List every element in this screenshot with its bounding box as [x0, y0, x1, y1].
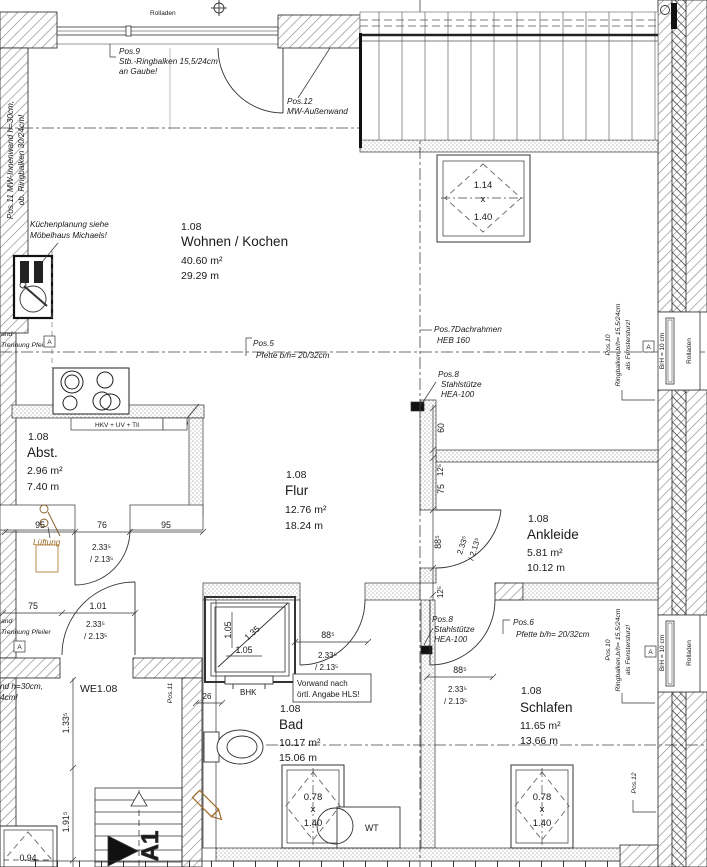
top-window-band [57, 26, 278, 130]
rolladen-top-label: Rolladen [150, 10, 176, 17]
room-wohnen-per: 29.29 m [181, 270, 219, 282]
room-ankleide-name: Ankleide [527, 527, 579, 542]
wall-cut-line2: 4cm! [0, 693, 18, 702]
pos9-line1: Pos.9 [119, 47, 140, 56]
pos8-1-line1: Pos.8 [438, 370, 459, 379]
cooktop [53, 368, 129, 414]
room-bad-name: Bad [279, 717, 303, 732]
rolladen-right-top: Rolladen [686, 338, 693, 364]
room-flur-name: Flur [285, 483, 309, 498]
vorwand-box: Vorwand nach örtl. Angabe HLS! [293, 674, 371, 702]
pos12-top-line2: MW-Außenwand [287, 107, 348, 116]
pos10-bottom-line3: als Fenstersturz! [625, 625, 632, 675]
marker-a-2: A [17, 644, 22, 651]
room-flur-area: 12.76 m² [285, 504, 327, 516]
room-bad-area: 10.17 m² [279, 737, 321, 749]
marker-a-1: A [47, 339, 52, 346]
pos10-top-line3: als Fenstersturz! [625, 320, 632, 370]
dim-schlafen-door-w: 88⁵ [453, 665, 467, 675]
pos9-line3: an Gaube! [119, 67, 158, 76]
lueftung-label: Lüftung [33, 538, 61, 547]
kueche-note-line1: Küchenplanung siehe [30, 220, 109, 229]
dim-schlafen-door-b: / 2.13⁵ [444, 697, 467, 706]
roof-window-large-height: 1.40 [474, 212, 493, 223]
wall-note2-line2: Trennung Pfeiler [1, 629, 51, 636]
pos5-line2: Pfette b/h= 20/32cm [256, 351, 330, 360]
pos8-2-line3: HEA-100 [434, 635, 468, 644]
room-abst-name: Abst. [27, 445, 58, 460]
marker-a-4: A [648, 649, 653, 656]
brh-note-top: BrH = 10 cm [659, 333, 666, 369]
room-ankleide-nr: 1.08 [528, 513, 549, 525]
roof-window-large: 1.14 x 1.40 [437, 155, 530, 242]
pos11-left-line1: Pos.11 MW-Innenwand h=30cm, [6, 101, 15, 219]
pos10-bottom-line1: Pos.10 [605, 639, 612, 660]
room-bad-nr: 1.08 [280, 703, 301, 715]
room-wohnen-name: Wohnen / Kochen [181, 234, 288, 249]
room-schlafen-per: 13.66 m [520, 735, 558, 747]
stair-label: A1 [137, 831, 164, 862]
roof-window-bad-sep: x [311, 804, 316, 815]
dim-bad-door-a: 2.33⁵ [318, 651, 337, 660]
pos11-left-line2: ob. Ringbalken 30/24cm! [17, 114, 26, 205]
roof-window-bad: 0.78 x 1.40 [282, 765, 344, 848]
survey-point-icon [211, 0, 227, 16]
light-walls [0, 140, 658, 861]
dim-door1-b: / 2.13⁵ [90, 555, 113, 564]
room-wohnen-nr: 1.08 [181, 221, 202, 233]
dim-ankleide-door-b: / 2.13⁵ [467, 537, 483, 562]
roof-window-schlafen-width: 0.78 [533, 792, 552, 803]
room-schlafen-area: 11.65 m² [520, 720, 561, 732]
roof-window-large-width: 1.14 [474, 180, 493, 191]
pos12-top-line1: Pos.12 [287, 97, 313, 106]
room-flur-per: 18.24 m [285, 520, 323, 532]
room-wohnen-area: 40.60 m² [181, 255, 223, 267]
room-ankleide-area: 5.81 m² [527, 547, 563, 559]
wall-cut-line1: nd h=30cm, [0, 682, 43, 691]
roof-window-corner-width: 0.94 [19, 853, 36, 863]
right-window-bottom: BrH = 10 cm Rolladen [658, 615, 700, 692]
dim-bad-door-b: / 2.13⁵ [315, 663, 338, 672]
dim-shower-diag: 1.35 [242, 624, 262, 643]
pos5-line1: Pos.5 [253, 339, 274, 348]
dim-76: 76 [97, 520, 107, 530]
room-schlafen-name: Schlafen [520, 700, 573, 715]
door-arc-terrace [218, 48, 283, 113]
pos7-line2: HEB 160 [437, 336, 470, 345]
dim-75-v: 75 [436, 484, 446, 494]
marker-a-3: A [646, 344, 651, 351]
dim-125-b: 12⁵ [436, 586, 445, 598]
dim-101: 1.01 [89, 601, 106, 611]
wall-note2-line1: and [1, 618, 13, 625]
dim-bad-door-w: 88⁵ [321, 630, 335, 640]
brh-note-bottom: BrH = 10 cm [659, 635, 666, 671]
pos8-1-line3: HEA-100 [441, 390, 475, 399]
dim-95-left: 95 [35, 520, 45, 530]
dim-schlafen-door-a: 2.33⁵ [448, 685, 467, 694]
toilet [204, 730, 263, 764]
door-arc-stair-lobby [62, 582, 135, 655]
dimension-texts: 95 76 95 2.33⁵ / 2.13⁵ 75 1.01 2.33⁵ / 2… [28, 423, 482, 832]
dim-door2-b: / 2.13⁵ [84, 632, 107, 641]
dim-885-v: 88⁵ [433, 535, 443, 549]
pos12-bottom-label: Pos.12 [631, 772, 638, 793]
bhk-label: BHK [240, 688, 257, 697]
vorwand-line1: Vorwand nach [297, 679, 348, 688]
room-abst-area: 2.96 m² [27, 465, 63, 477]
pos8-2-line2: Stahlstütze [434, 625, 475, 634]
room-schlafen-nr: 1.08 [521, 685, 542, 697]
dim-75: 75 [28, 601, 38, 611]
roof-window-schlafen-height: 1.40 [533, 818, 552, 829]
pos10-top-line2: Ringbalken,b/h= 15,5/24cm [615, 303, 622, 386]
kitchen-sink-unit [14, 250, 52, 368]
dim-95-right: 95 [161, 520, 171, 530]
roof-window-schlafen: 0.78 x 1.40 [511, 765, 573, 848]
floorplan-page: BrH = 10 cm Rolladen BrH = 10 cm Rollade… [0, 0, 707, 867]
dim-1915: 1.91⁵ [61, 811, 71, 832]
dim-60: 60 [436, 423, 446, 433]
wall-note1-line1: and [1, 331, 13, 338]
hkv-box: HKV + UV + Tll [71, 418, 187, 430]
roof-window-large-sep: x [481, 194, 486, 205]
room-abst-per: 7.40 m [27, 481, 59, 493]
wt-label: WT [365, 823, 379, 833]
dim-shower-h: 1.05 [223, 621, 233, 638]
dim-ankleide-door-a: 2.33⁵ [455, 535, 469, 556]
roof-window-bad-height: 1.40 [304, 818, 323, 829]
roof-window-schlafen-sep: x [540, 804, 545, 815]
staircase: A1 [95, 788, 182, 867]
pos6-line2: Pfette b/h= 20/32cm [516, 630, 590, 639]
hkv-label: HKV + UV + Tll [95, 422, 140, 429]
pos8-1-line2: Stahlstütze [441, 380, 482, 389]
terrace-deck [360, 3, 677, 148]
dim-125-a: 12⁵ [436, 464, 445, 476]
pos8-2-line1: Pos.8 [432, 615, 453, 624]
downpipe-bar [671, 3, 677, 29]
dim-door1-a: 2.33⁵ [92, 543, 111, 552]
dim-1335: 1.33⁵ [61, 712, 71, 733]
dim-door2-a: 2.33⁵ [86, 620, 105, 629]
room-bad-per: 15.06 m [279, 752, 317, 764]
stair-up-arrow-icon [131, 792, 147, 806]
floorplan-drawing: BrH = 10 cm Rolladen BrH = 10 cm Rollade… [0, 0, 707, 867]
pos6-line1: Pos.6 [513, 618, 534, 627]
we-label: WE1.08 [80, 683, 118, 695]
pos10-bottom-line2: Ringbalken,b/h= 15,5/24cm [615, 608, 622, 691]
vorwand-line2: örtl. Angabe HLS! [297, 690, 360, 699]
room-ankleide-per: 10.12 m [527, 562, 565, 574]
kueche-note-line2: Möbelhaus Michaels! [30, 231, 108, 240]
pos11-small-label: Pos.11 [167, 682, 174, 703]
right-window-top: BrH = 10 cm Rolladen [658, 312, 700, 390]
pos7-line1: Pos.7Dachrahmen [434, 325, 502, 334]
roof-window-bad-width: 0.78 [304, 792, 323, 803]
dim-26: 26 [203, 692, 212, 701]
pos9-line2: Stb.-Ringbalken 15,5/24cm [119, 57, 218, 66]
dim-shower-w: 1.05 [235, 645, 252, 655]
pos10-top-line1: Pos.10 [605, 334, 612, 355]
room-flur-nr: 1.08 [286, 469, 307, 481]
rolladen-right-bottom: Rolladen [686, 640, 693, 666]
room-abst-nr: 1.08 [28, 431, 49, 443]
